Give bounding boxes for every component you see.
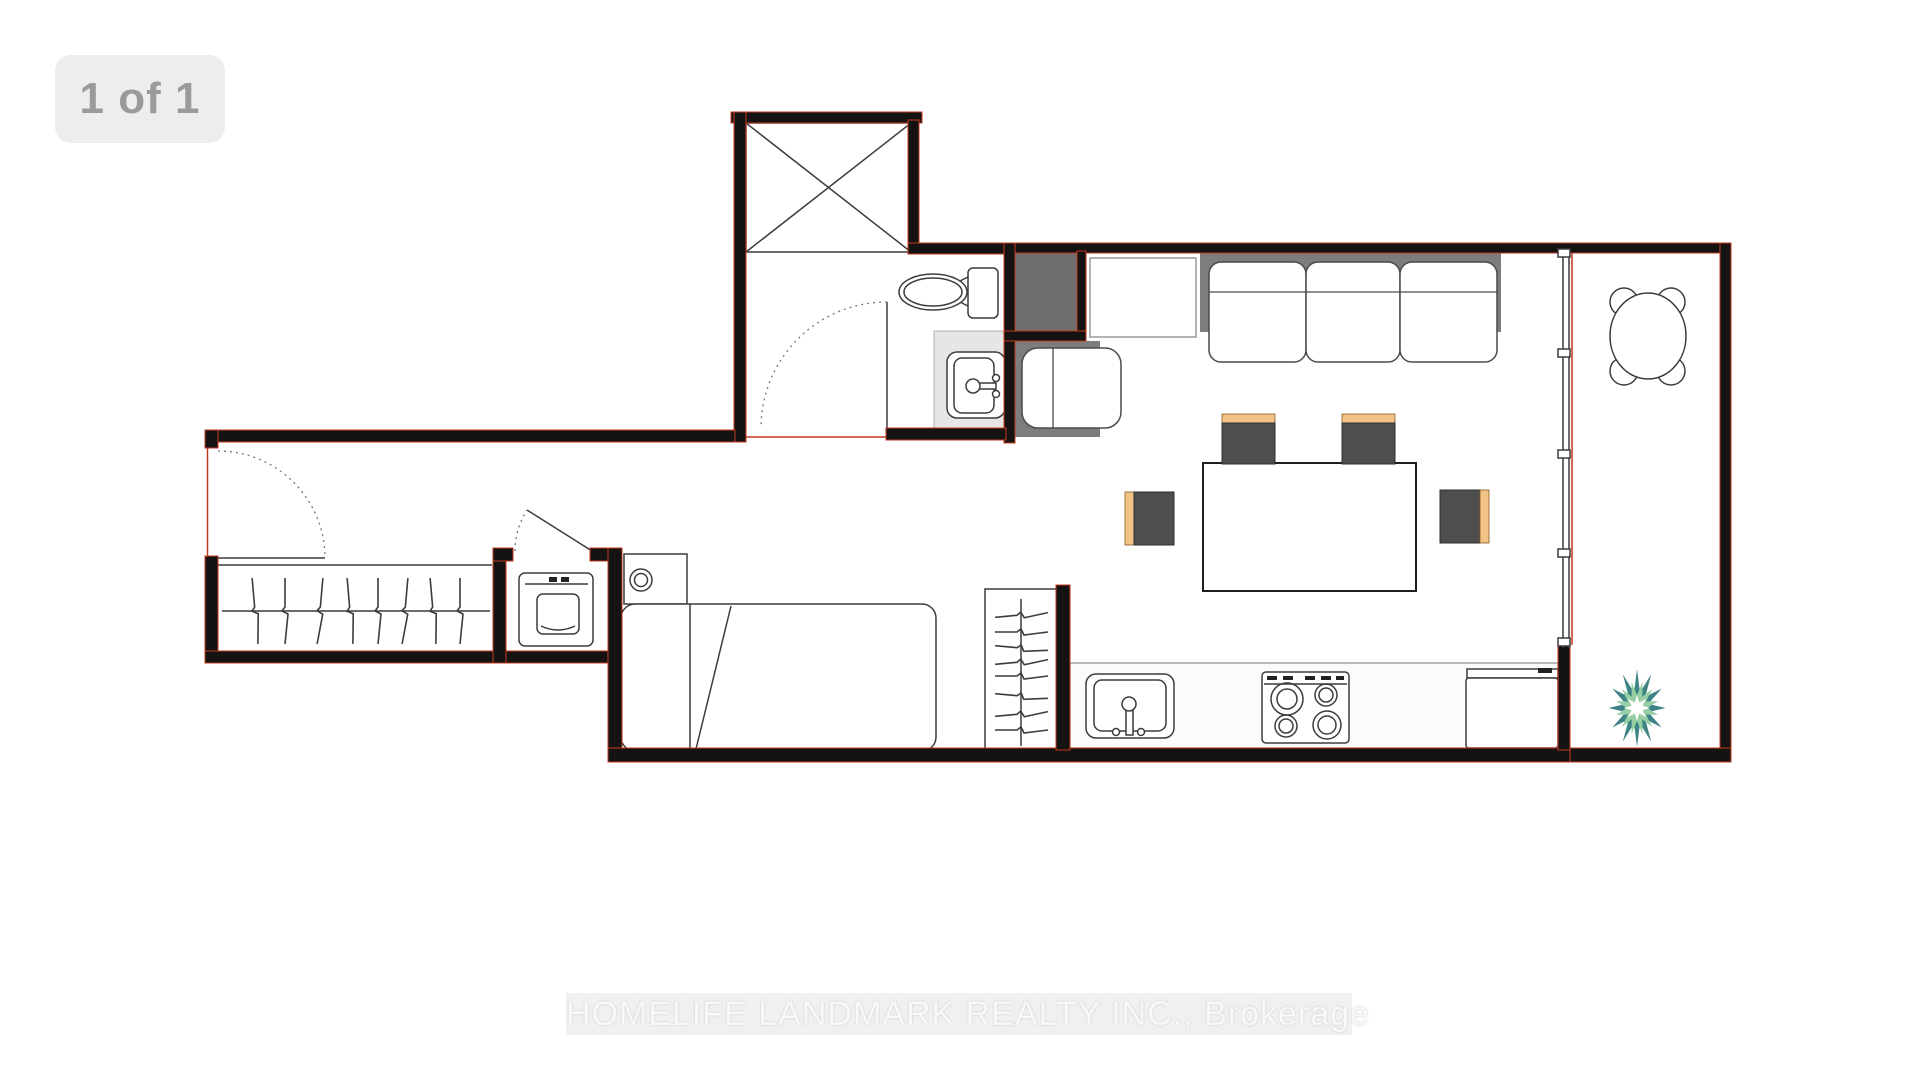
red-accent-lines bbox=[208, 437, 887, 557]
dining-table bbox=[1203, 463, 1416, 591]
brokerage-watermark: HOMELIFE LANDMARK REALTY INC., Brokerage bbox=[566, 993, 1352, 1035]
dining-stool-top-left bbox=[1222, 414, 1275, 464]
shaft-x-room bbox=[746, 123, 911, 252]
armchair bbox=[1014, 341, 1121, 437]
balcony-table bbox=[1610, 288, 1686, 385]
bed bbox=[621, 604, 936, 751]
window-wall bbox=[1558, 249, 1572, 648]
tv-stand bbox=[1090, 258, 1196, 337]
wardrobe bbox=[985, 589, 1057, 750]
toilet bbox=[899, 268, 998, 318]
dining-stool-right bbox=[1440, 490, 1489, 543]
laundry-door bbox=[515, 510, 592, 551]
entry-closet bbox=[1012, 251, 1079, 334]
stove bbox=[1262, 672, 1349, 743]
floor-plan-image[interactable] bbox=[0, 0, 1920, 1079]
balcony-plant bbox=[1609, 669, 1666, 747]
photo-viewer: 1 of 1 bbox=[0, 0, 1920, 1079]
hall-closet bbox=[218, 565, 492, 644]
kitchen-sink bbox=[1086, 674, 1174, 738]
sofa bbox=[1200, 248, 1501, 362]
entry-door bbox=[218, 451, 325, 558]
dining-stool-top-right bbox=[1342, 414, 1395, 464]
bathroom-sink bbox=[947, 352, 1005, 418]
fridge bbox=[1466, 668, 1558, 748]
washer bbox=[519, 573, 593, 646]
dining-stool-left bbox=[1125, 492, 1174, 545]
nightstand bbox=[624, 554, 687, 604]
bathroom-door bbox=[761, 302, 887, 428]
